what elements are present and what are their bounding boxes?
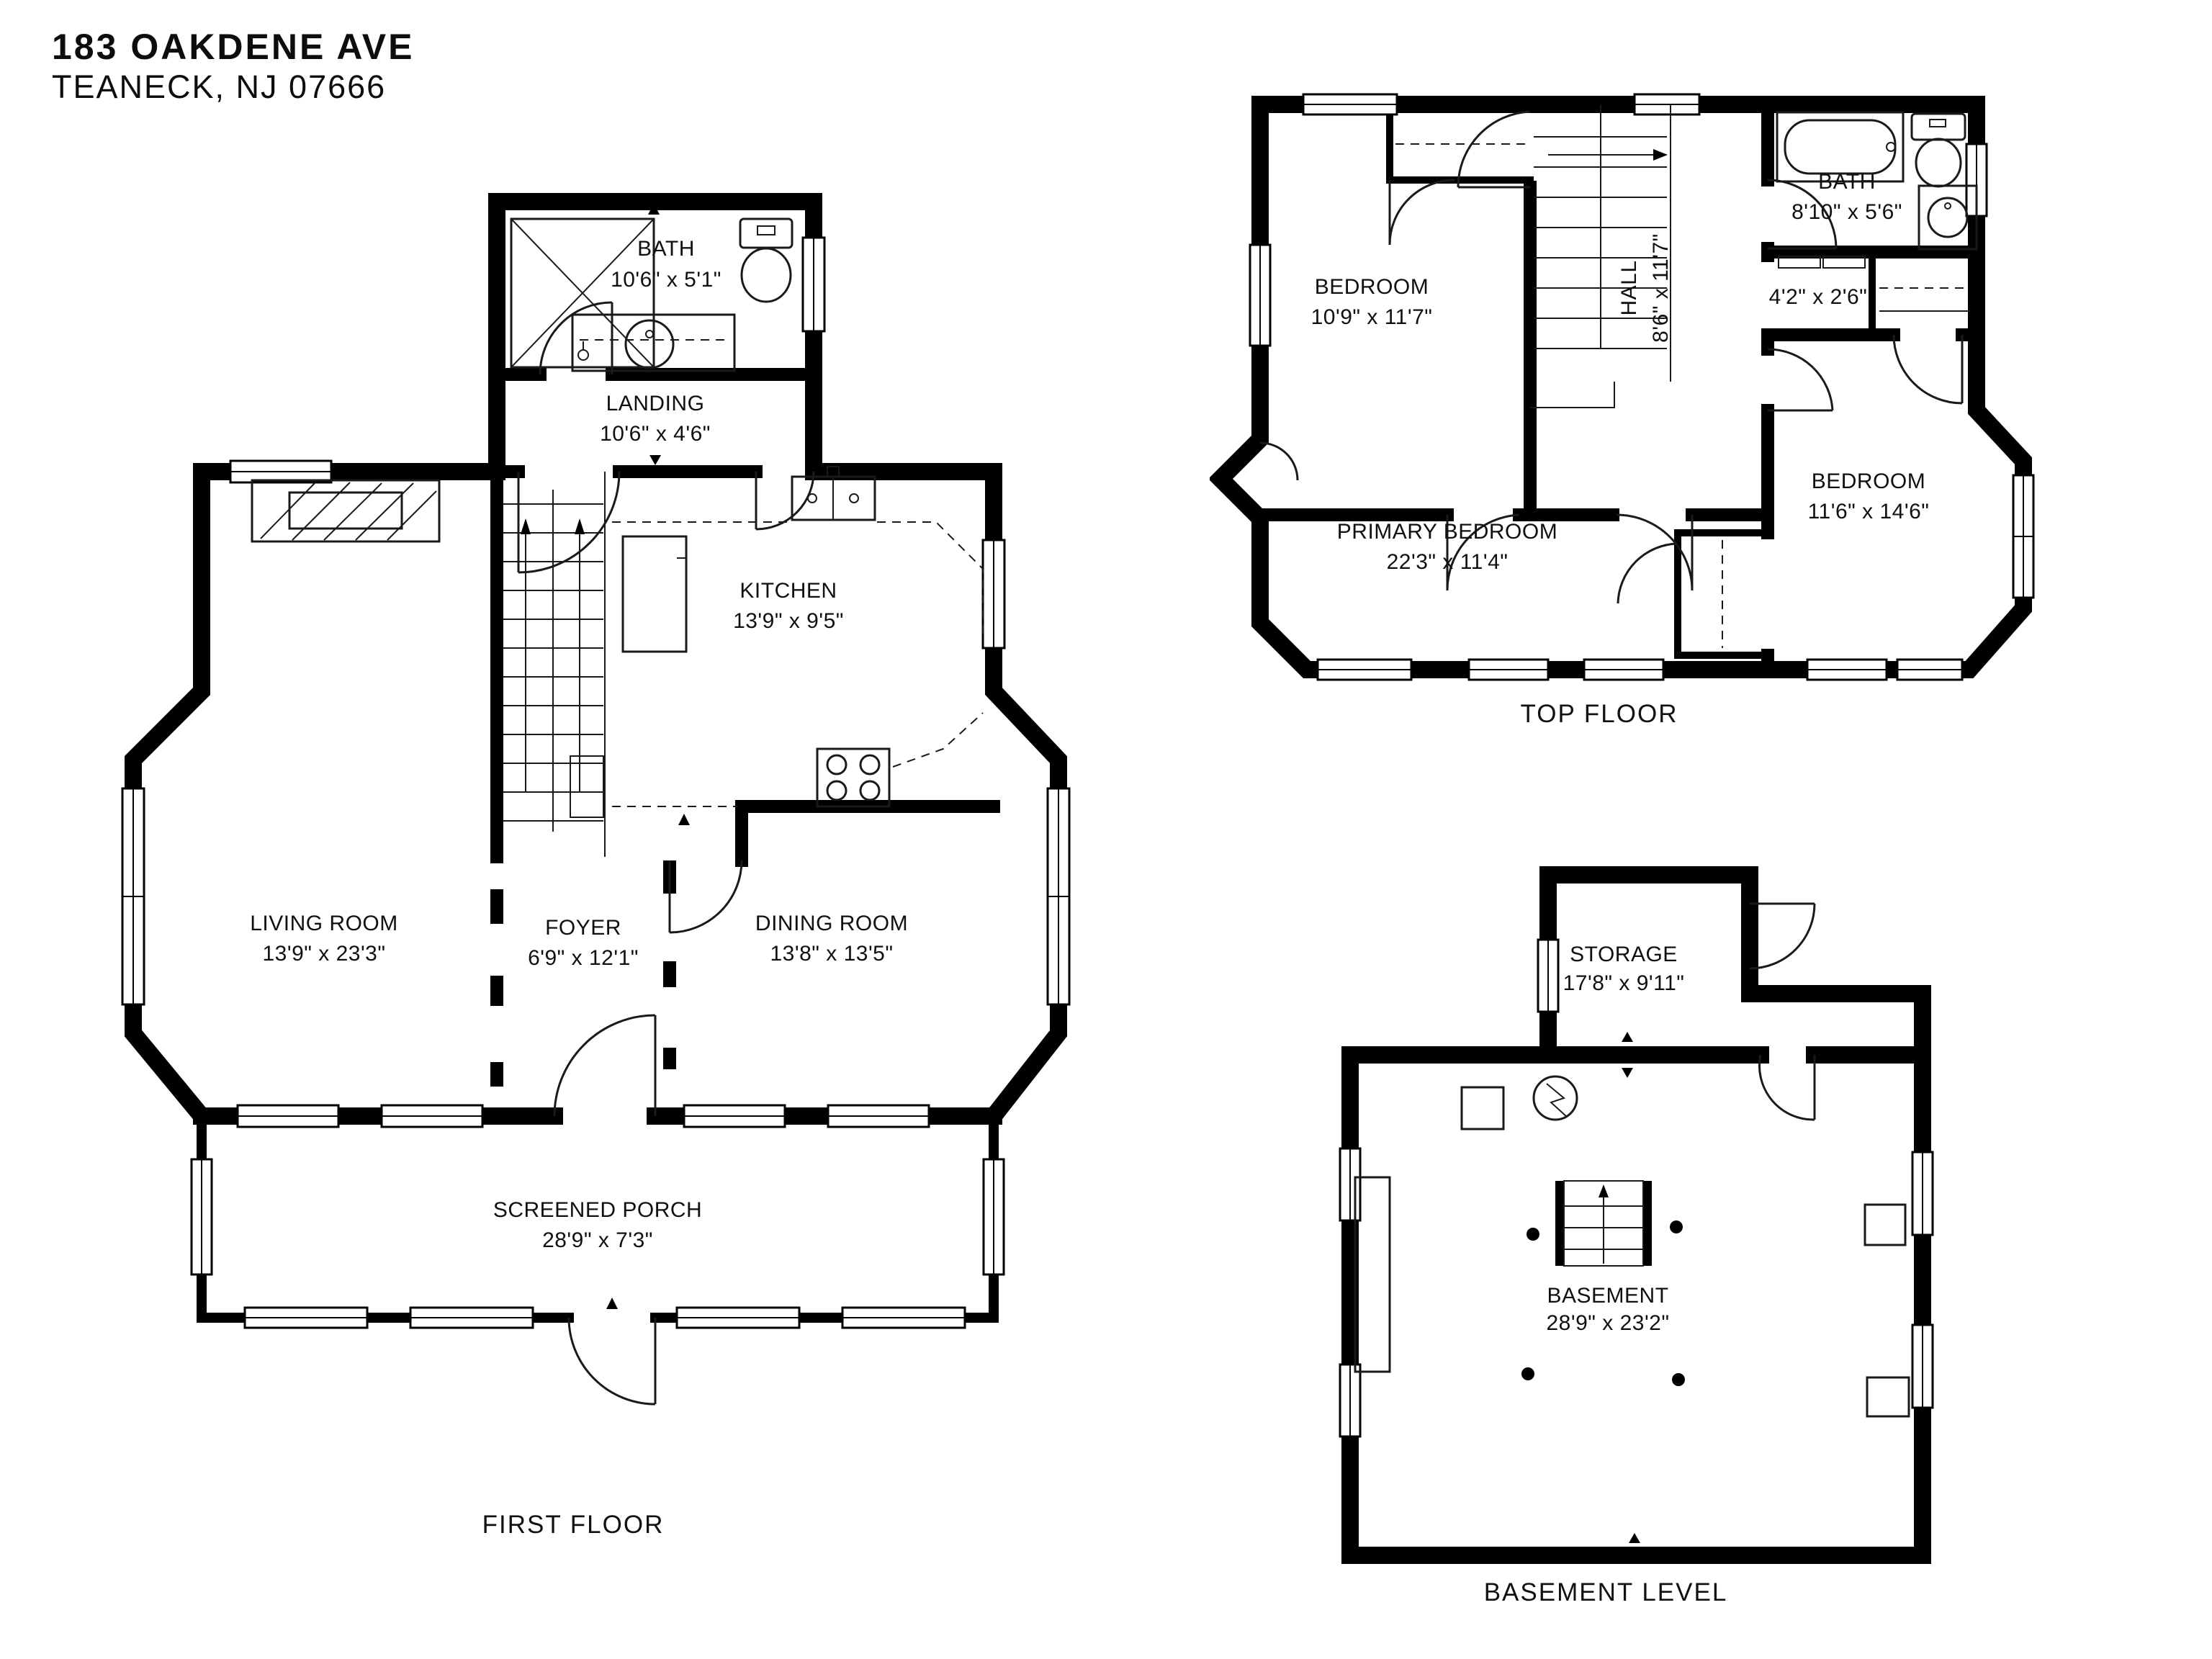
label-dining-room: DINING ROOM — [755, 912, 908, 935]
label-bedroom-2: BEDROOM — [1812, 469, 1926, 493]
window — [984, 1159, 1004, 1274]
dims-dining-room: 13'8" x 13'5" — [770, 942, 893, 966]
support-column — [1672, 1373, 1685, 1386]
window — [1250, 245, 1270, 346]
top-floor-plan: BEDROOM 10'9" x 11'7" HALL 8'6" x 11'7" … — [1210, 72, 2074, 706]
window — [1912, 1325, 1933, 1408]
label-hall: HALL — [1617, 260, 1641, 315]
first-floor-windows — [122, 238, 1069, 1328]
label-screened-porch: SCREENED PORCH — [493, 1198, 702, 1222]
window — [382, 1105, 482, 1127]
window — [1340, 1364, 1360, 1437]
window — [828, 1105, 929, 1127]
dims-kitchen: 13'9" x 9'5" — [733, 609, 844, 633]
dims-bath-2: 8'10" x 5'6" — [1791, 200, 1902, 224]
basement-plan: STORAGE 17'8" x 9'11" BASEMENT 28'9" x 2… — [1318, 860, 1951, 1588]
window — [1340, 1148, 1360, 1220]
door-arc — [1390, 180, 1455, 245]
label-primary-bedroom: PRIMARY BEDROOM — [1337, 520, 1557, 544]
dims-landing: 10'6" x 4'6" — [600, 422, 711, 446]
dims-hall: 8'6" x 11'7" — [1649, 233, 1673, 343]
refrigerator-icon — [623, 536, 686, 652]
utility-box — [1462, 1087, 1503, 1129]
door-arc — [554, 1015, 655, 1116]
utility-box — [1865, 1205, 1905, 1245]
dims-screened-porch: 28'9" x 7'3" — [542, 1228, 653, 1252]
support-column — [1670, 1220, 1683, 1233]
basement-staircase-icon — [1555, 1181, 1652, 1266]
door-arc — [1759, 1055, 1815, 1120]
address-header: 183 OAKDENE AVE TEANECK, NJ 07666 — [52, 27, 414, 107]
window — [245, 1308, 367, 1328]
window — [684, 1105, 785, 1127]
label-foyer: FOYER — [545, 916, 621, 940]
fireplace-icon — [252, 480, 439, 541]
window — [1807, 660, 1887, 680]
window — [1912, 1152, 1933, 1235]
first-floor-caption: FIRST FLOOR — [429, 1511, 717, 1539]
floorplan-sheet: 183 OAKDENE AVE TEANECK, NJ 07666 — [0, 0, 2212, 1659]
window — [983, 540, 1004, 648]
toilet-icon — [1912, 114, 1965, 186]
basement-labels: STORAGE 17'8" x 9'11" BASEMENT 28'9" x 2… — [1546, 943, 1684, 1335]
window — [1635, 94, 1699, 114]
dims-closet: 4'2" x 2'6" — [1769, 285, 1868, 309]
label-landing: LANDING — [606, 392, 705, 415]
window — [1538, 940, 1558, 1012]
label-bedroom-1: BEDROOM — [1315, 275, 1429, 299]
dims-storage: 17'8" x 9'11" — [1563, 971, 1685, 995]
dims-basement: 28'9" x 23'2" — [1546, 1311, 1669, 1335]
label-living-room: LIVING ROOM — [250, 912, 398, 935]
door-arc — [569, 1318, 655, 1404]
dims-primary-bedroom: 22'3" x 11'4" — [1387, 550, 1509, 574]
shower-icon — [511, 219, 654, 367]
dims-bedroom-2: 11'6" x 14'6" — [1808, 500, 1930, 523]
window — [2013, 475, 2033, 598]
door-arc — [1618, 544, 1678, 603]
dims-bath: 10'6" x 5'1" — [611, 268, 721, 292]
window — [122, 788, 144, 1004]
label-bath: BATH — [637, 237, 695, 261]
window — [842, 1308, 965, 1328]
dims-bedroom-1: 10'9" x 11'7" — [1311, 305, 1433, 329]
top-floor-caption: TOP FLOOR — [1455, 700, 1743, 729]
first-floor-walls — [133, 202, 1058, 1318]
window — [1584, 660, 1663, 680]
address-line-1: 183 OAKDENE AVE — [52, 27, 414, 67]
electrical-panel-icon — [1534, 1076, 1577, 1120]
stove-icon — [817, 749, 889, 806]
door-arc — [1260, 443, 1298, 480]
window — [1897, 660, 1962, 680]
first-floor-plan: BATH 10'6" x 5'1" LANDING 10'6" x 4'6" K… — [108, 180, 1080, 1440]
dims-living-room: 13'9" x 23'3" — [262, 942, 385, 966]
window — [1318, 660, 1411, 680]
window — [677, 1308, 799, 1328]
label-bath-2: BATH — [1818, 170, 1876, 194]
door-arc — [1894, 335, 1962, 403]
window — [1469, 660, 1548, 680]
label-storage: STORAGE — [1570, 943, 1678, 966]
support-column — [1521, 1367, 1534, 1380]
basement-caption: BASEMENT LEVEL — [1462, 1578, 1750, 1607]
window — [1048, 788, 1069, 1004]
label-basement: BASEMENT — [1547, 1284, 1668, 1308]
door-arc — [670, 860, 742, 932]
basement-doors — [1750, 904, 1815, 1120]
window — [410, 1308, 533, 1328]
top-floor-windows — [1250, 94, 2033, 680]
support-column — [1527, 1228, 1539, 1241]
window — [1303, 94, 1397, 114]
door-arc — [1458, 112, 1530, 187]
window — [192, 1159, 212, 1274]
label-kitchen: KITCHEN — [739, 579, 837, 603]
utility-box — [1867, 1377, 1909, 1416]
toilet-icon — [740, 219, 792, 302]
door-arc — [1750, 904, 1815, 968]
window — [238, 1105, 338, 1127]
dims-foyer: 6'9" x 12'1" — [528, 946, 639, 970]
window — [803, 238, 824, 331]
kitchen-counter — [612, 522, 983, 806]
door-arc — [1768, 349, 1833, 410]
basement-windows — [1340, 940, 1933, 1437]
address-line-2: TEANECK, NJ 07666 — [52, 67, 414, 107]
